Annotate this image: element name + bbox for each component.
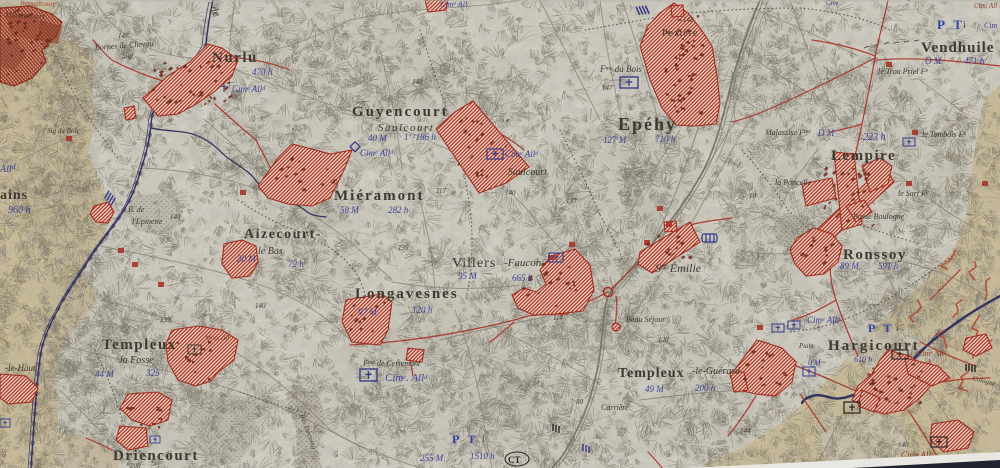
svg-text:Nurlu: Nurlu bbox=[212, 50, 258, 66]
svg-text:147: 147 bbox=[602, 84, 613, 92]
svg-text:120: 120 bbox=[658, 336, 669, 344]
svg-text:139: 139 bbox=[160, 316, 171, 324]
svg-text:44 M: 44 M bbox=[95, 369, 114, 379]
svg-text:40 M: 40 M bbox=[368, 133, 387, 143]
svg-text:255 M: 255 M bbox=[420, 453, 444, 463]
svg-text:148: 148 bbox=[170, 213, 181, 221]
svg-text:Aizecourt-: Aizecourt- bbox=[244, 227, 322, 242]
svg-text:Miéramont: Miéramont bbox=[334, 188, 424, 204]
svg-text:97 M: 97 M bbox=[358, 307, 377, 317]
svg-text:139: 139 bbox=[398, 244, 409, 252]
svg-text:137: 137 bbox=[566, 197, 577, 205]
svg-text:le Sart Fe: le Sart Fe bbox=[898, 189, 929, 198]
svg-text:Pezière: Pezière bbox=[662, 28, 698, 39]
svg-text:117: 117 bbox=[436, 187, 446, 195]
svg-text:Beau Séjour: Beau Séjour bbox=[626, 315, 666, 324]
svg-text:Vendhuile: Vendhuile bbox=[921, 40, 994, 56]
svg-text:Longavesnes: Longavesnes bbox=[355, 286, 459, 302]
svg-text:P T: P T bbox=[868, 321, 894, 335]
svg-text:470 h: 470 h bbox=[252, 67, 273, 77]
svg-text:710 h: 710 h bbox=[655, 134, 676, 144]
svg-text:Cime. Alld: Cime. Alld bbox=[385, 372, 428, 384]
svg-text:Cime Alld: Cime Alld bbox=[232, 84, 266, 94]
svg-text:Sigl: Sigl bbox=[122, 52, 133, 60]
svg-text:127 M: 127 M bbox=[603, 135, 627, 145]
svg-text:Hargicourt: Hargicourt bbox=[828, 338, 920, 354]
svg-text:B. de: B. de bbox=[128, 205, 145, 214]
svg-text:Carrière: Carrière bbox=[601, 403, 629, 412]
svg-text:72 h: 72 h bbox=[288, 259, 304, 269]
svg-text:-Faucon: -Faucon bbox=[504, 257, 542, 269]
svg-text:665 h: 665 h bbox=[512, 273, 533, 283]
svg-text:120 h: 120 h bbox=[412, 305, 433, 315]
svg-text:Puits: Puits bbox=[798, 342, 814, 350]
svg-text:140: 140 bbox=[505, 189, 516, 197]
svg-text:l'Epinette: l'Epinette bbox=[132, 217, 163, 226]
svg-text:Villers: Villers bbox=[452, 256, 496, 271]
svg-text:Basse Boulogne: Basse Boulogne bbox=[853, 212, 905, 221]
svg-text:le Bas: le Bas bbox=[258, 246, 283, 257]
svg-text:325: 325 bbox=[145, 368, 160, 378]
svg-text:10: 10 bbox=[749, 192, 757, 200]
svg-text:140: 140 bbox=[898, 441, 909, 449]
svg-text:Mon. All: Mon. All bbox=[204, 334, 229, 342]
svg-text:144: 144 bbox=[740, 427, 751, 435]
svg-text:-le-Haut: -le-Haut bbox=[5, 363, 36, 373]
svg-text:le Trou Priel Fe: le Trou Priel Fe bbox=[878, 67, 928, 76]
svg-text:147: 147 bbox=[118, 32, 129, 40]
svg-text:Templeux: Templeux bbox=[618, 366, 685, 381]
svg-text:58 M: 58 M bbox=[340, 205, 359, 215]
svg-text:148: 148 bbox=[412, 78, 423, 86]
svg-text:89 M: 89 M bbox=[840, 261, 859, 271]
svg-text:Cime Alld: Cime Alld bbox=[807, 315, 841, 325]
svg-text:Driencourt: Driencourt bbox=[113, 448, 199, 464]
svg-text:-le-Guérard: -le-Guérard bbox=[692, 366, 741, 377]
svg-text:P T: P T bbox=[937, 17, 965, 32]
svg-text:Cim: Cim bbox=[984, 21, 998, 30]
svg-text:49 M: 49 M bbox=[645, 384, 664, 394]
svg-text:O M: O M bbox=[925, 56, 942, 66]
svg-text:Templeux: Templeux bbox=[102, 337, 177, 353]
svg-text:Cim. All: Cim. All bbox=[974, 2, 997, 10]
svg-text:Lempire: Lempire bbox=[831, 148, 896, 164]
svg-text:Cime Alld: Cime Alld bbox=[917, 349, 947, 358]
svg-text:D M: D M bbox=[817, 128, 835, 138]
svg-text:Cime Alld: Cime Alld bbox=[505, 149, 539, 159]
svg-text:Guyencourt: Guyencourt bbox=[352, 104, 449, 120]
svg-text:Saulcourt: Saulcourt bbox=[508, 167, 547, 178]
svg-text:i: i bbox=[963, 20, 966, 31]
svg-text:Epéhy: Epéhy bbox=[618, 114, 677, 134]
svg-text:CT: CT bbox=[508, 455, 521, 465]
svg-text:208: 208 bbox=[130, 462, 141, 468]
svg-text:142: 142 bbox=[683, 16, 694, 24]
svg-text:223 h: 223 h bbox=[863, 132, 886, 143]
svg-text:Sig du Bois: Sig du Bois bbox=[47, 127, 79, 135]
svg-text:la Fosse: la Fosse bbox=[120, 355, 154, 366]
svg-text:200 h: 200 h bbox=[695, 383, 716, 393]
svg-text:le Tombois Fe: le Tombois Fe bbox=[922, 130, 967, 139]
svg-text:0 M: 0 M bbox=[808, 358, 822, 367]
svg-text:80: 80 bbox=[576, 398, 584, 406]
svg-text:1510 h: 1510 h bbox=[470, 451, 495, 461]
svg-text:20 M: 20 M bbox=[237, 254, 256, 264]
svg-text:140: 140 bbox=[255, 302, 266, 310]
svg-text:591 h: 591 h bbox=[878, 261, 899, 271]
svg-text:Cime Alld: Cime Alld bbox=[360, 148, 394, 158]
svg-text:P T: P T bbox=[452, 432, 478, 446]
svg-text:282 h: 282 h bbox=[388, 205, 409, 215]
svg-text:ains: ains bbox=[0, 188, 28, 203]
svg-text:960 h: 960 h bbox=[8, 205, 31, 216]
svg-text:la Poncelle: la Poncelle bbox=[775, 178, 812, 187]
svg-text:95 M: 95 M bbox=[458, 271, 477, 281]
svg-text:114: 114 bbox=[553, 314, 563, 322]
svg-text:610 h: 610 h bbox=[854, 355, 872, 364]
svg-text:471 h: 471 h bbox=[964, 56, 985, 66]
